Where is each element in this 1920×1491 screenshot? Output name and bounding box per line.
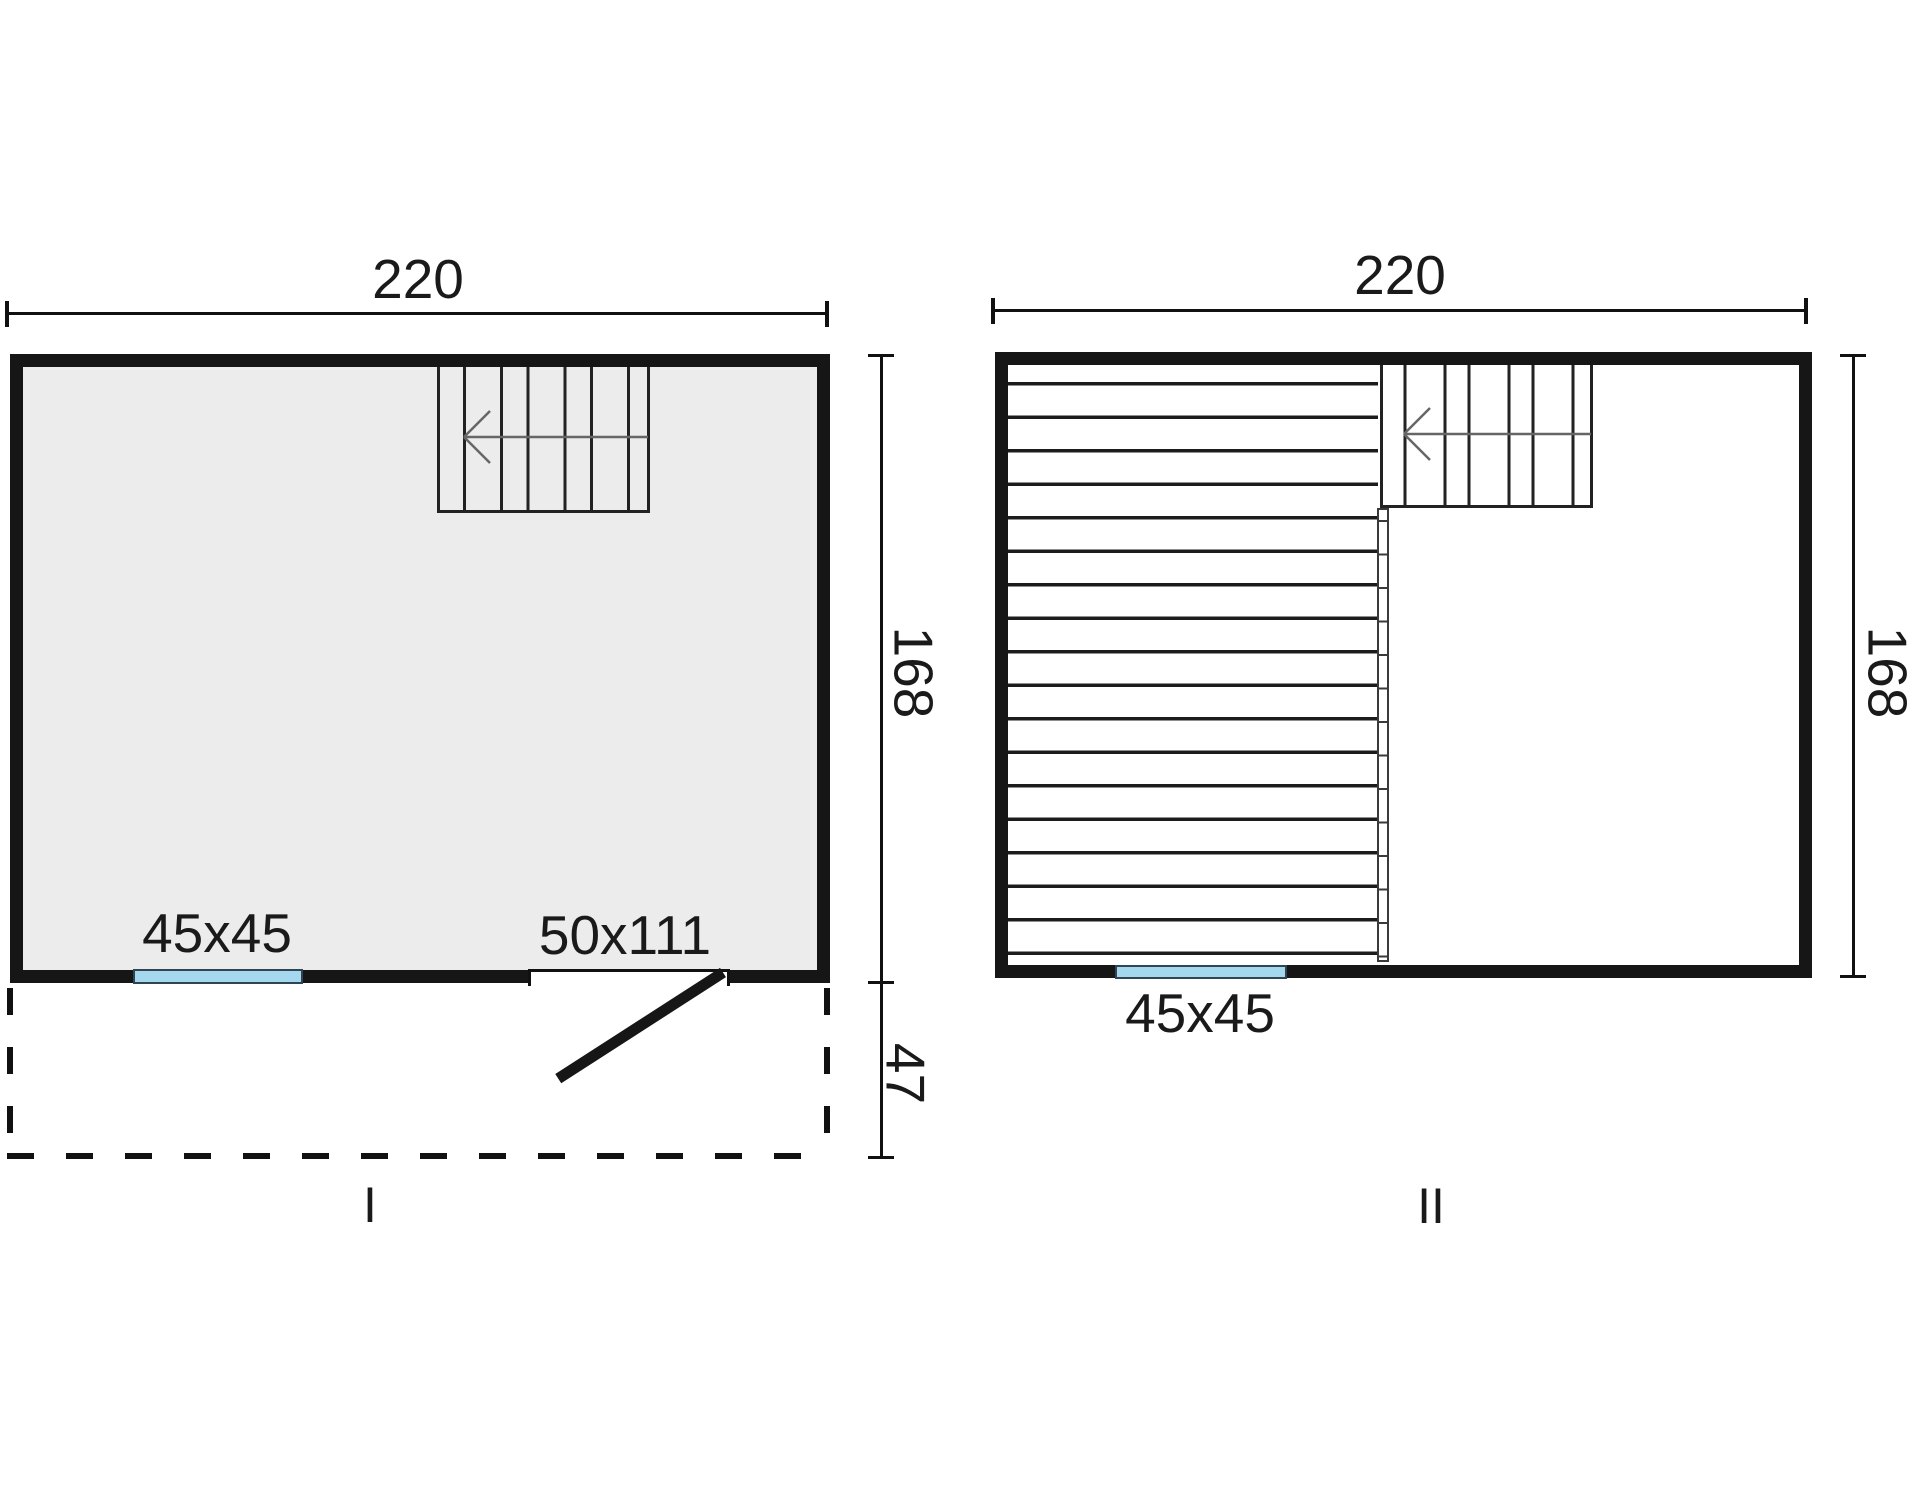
dim-cap-top-plan2: [1840, 354, 1866, 357]
plan1-building-outline: [10, 354, 830, 983]
dim-line-width-plan1: [7, 312, 829, 315]
porch-dashed-right: [824, 988, 830, 1158]
stair-direction-arrow-icon: [1402, 406, 1593, 462]
porch-dashed-bottom: [7, 1153, 830, 1159]
plan2-floor-boards: [1008, 365, 1378, 965]
stair-direction-arrow-icon: [462, 409, 652, 465]
dim-label-width-plan2: 220: [1300, 249, 1500, 301]
floor-plans-technical-drawing: 220 45x45 50x111 168 47 I 220 45x45 1: [0, 0, 1920, 1491]
plan1-number-label: I: [330, 1180, 410, 1230]
plan2-number-label: II: [1391, 1181, 1471, 1231]
plan2-window-label: 45x45: [1100, 988, 1300, 1038]
dim-tick-right-plan2: [1804, 298, 1808, 324]
dim-line-width-plan2: [993, 309, 1808, 312]
plan1-door-label: 50x111: [520, 910, 730, 960]
plan1-window-45x45: [133, 969, 303, 984]
dim-cap-top-plan1: [868, 354, 894, 357]
plan2-window-45x45: [1115, 965, 1287, 979]
porch-dashed-left: [7, 988, 13, 1158]
dim-label-height-plan1: 168: [886, 573, 941, 773]
plan2-loft-edge-strip: [1377, 508, 1389, 962]
dim-label-width-plan1: 220: [318, 253, 518, 305]
dim-label-height-plan2: 168: [1860, 573, 1915, 773]
dim-cap-bottom-plan2: [1840, 975, 1866, 978]
dim-label-porch-plan1: 47: [878, 974, 933, 1174]
dim-line-height-plan2: [1852, 354, 1855, 978]
plan1-window-label: 45x45: [117, 908, 317, 958]
dim-tick-right-plan1: [825, 301, 829, 327]
